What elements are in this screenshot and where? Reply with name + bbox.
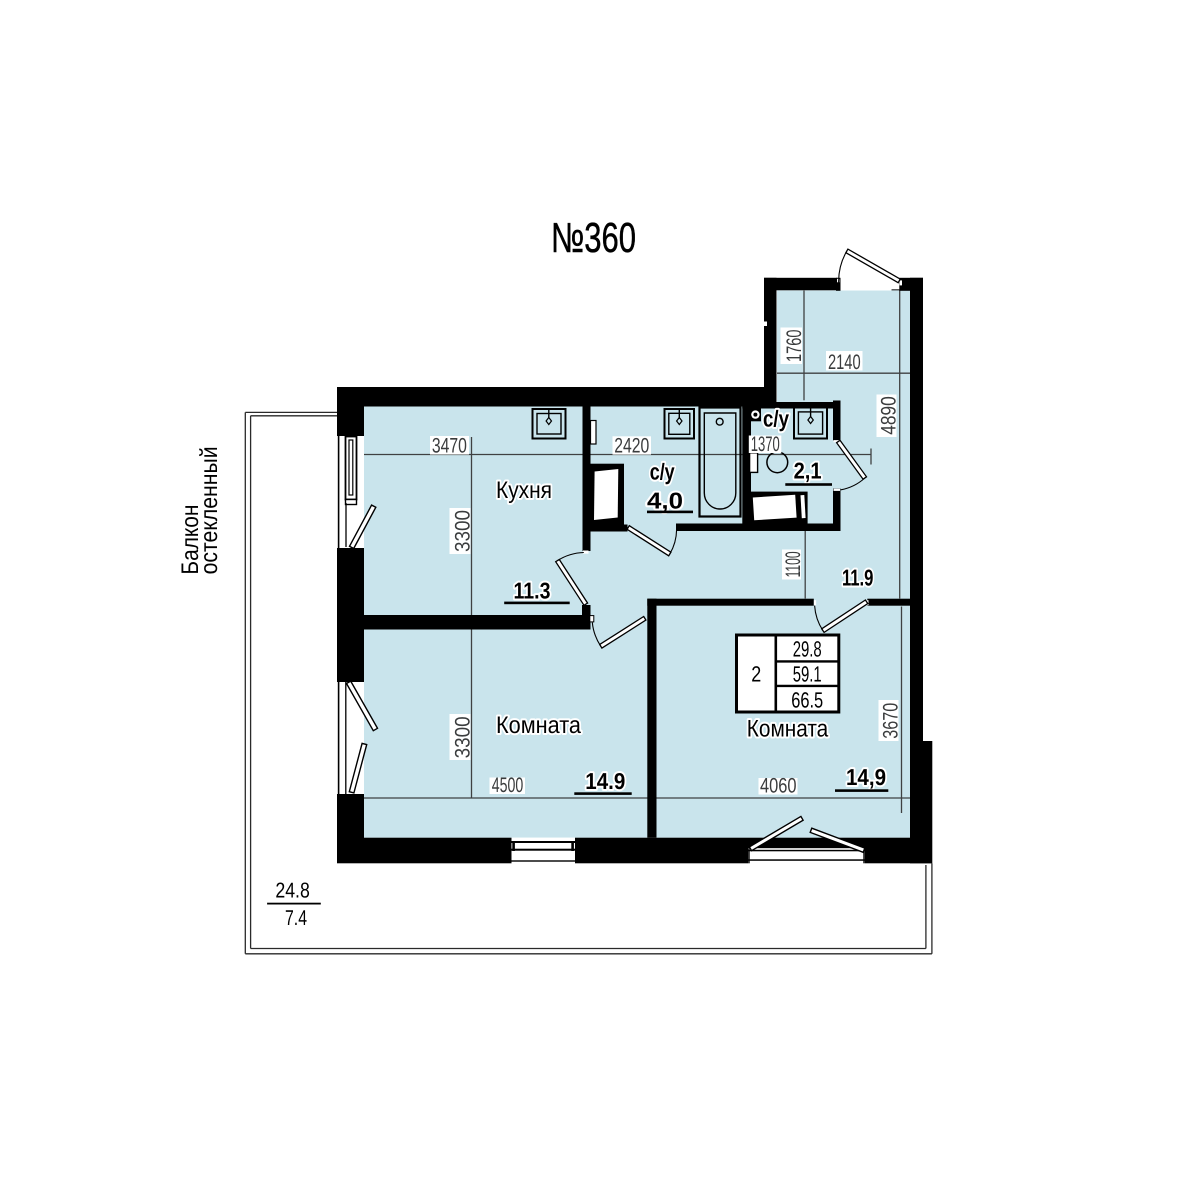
svg-text:29.8: 29.8 [793, 636, 822, 661]
svg-text:остекленный: остекленный [196, 446, 223, 574]
svg-text:2,1: 2,1 [794, 458, 822, 484]
svg-text:2: 2 [751, 662, 761, 687]
svg-text:1100: 1100 [782, 551, 805, 577]
svg-text:11.3: 11.3 [514, 578, 551, 604]
svg-text:с/у: с/у [763, 406, 789, 432]
svg-text:4,0: 4,0 [647, 488, 683, 514]
svg-text:Комната: Комната [496, 712, 582, 739]
svg-text:3300: 3300 [452, 510, 475, 552]
svg-text:11.9: 11.9 [842, 565, 874, 591]
svg-text:3670: 3670 [880, 703, 903, 739]
svg-text:Кухня: Кухня [496, 477, 552, 504]
svg-text:1370: 1370 [751, 433, 780, 456]
svg-text:3300: 3300 [452, 716, 475, 758]
svg-text:4060: 4060 [760, 775, 797, 798]
svg-text:24.8: 24.8 [275, 879, 310, 903]
svg-text:с/у: с/у [650, 459, 675, 485]
svg-text:7.4: 7.4 [285, 906, 307, 930]
svg-text:59.1: 59.1 [793, 661, 822, 686]
svg-text:№360: №360 [551, 214, 636, 261]
svg-text:4500: 4500 [492, 774, 524, 797]
svg-text:14.9: 14.9 [585, 768, 625, 794]
svg-text:Комната: Комната [747, 716, 829, 743]
svg-text:2140: 2140 [828, 351, 861, 374]
svg-text:1760: 1760 [783, 329, 806, 362]
svg-text:2420: 2420 [614, 435, 649, 458]
svg-text:4890: 4890 [878, 396, 901, 435]
svg-text:3470: 3470 [432, 435, 467, 458]
svg-text:66.5: 66.5 [791, 687, 823, 712]
svg-text:14,9: 14,9 [846, 764, 886, 790]
